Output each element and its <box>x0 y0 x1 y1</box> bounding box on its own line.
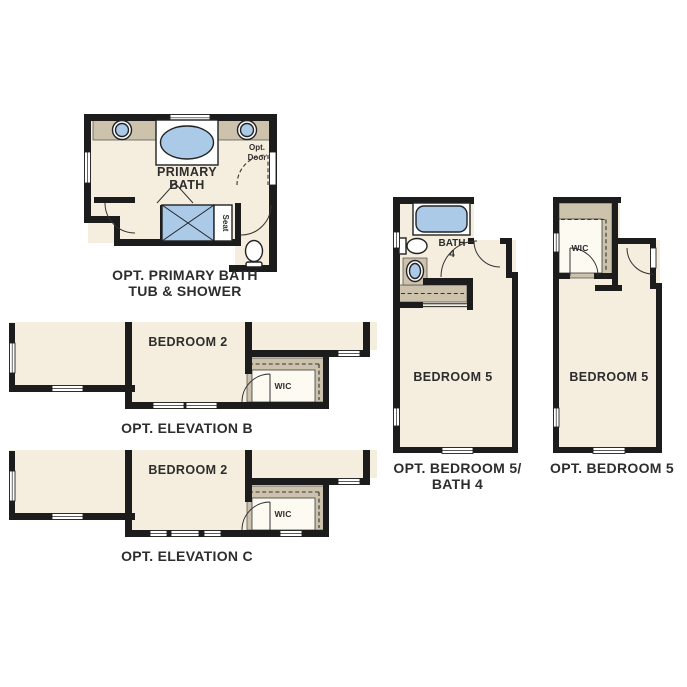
opt-door-label: Door <box>248 153 267 162</box>
wic-label: WIC <box>274 381 291 391</box>
sink-icon <box>113 121 132 140</box>
bath4-label: BATH <box>438 238 465 249</box>
bedroom5-floorplan: WIC BEDROOM 5 <box>551 195 665 457</box>
window <box>85 152 91 183</box>
window <box>394 408 400 426</box>
bedroom5-title: OPT. BEDROOM 5 <box>538 460 686 476</box>
primary-bath-label: PRIMARY <box>157 165 217 179</box>
window <box>171 531 199 537</box>
window <box>52 386 83 392</box>
window <box>593 448 625 454</box>
bedroom5-bath4-title: OPT. BEDROOM 5/ BATH 4 <box>385 460 530 492</box>
closet-shelf <box>398 285 467 302</box>
vanity-sink-icon <box>407 261 424 282</box>
elevation-c-floorplan: BEDROOM 2 WIC <box>8 448 380 542</box>
bath4-label: 4 <box>449 249 455 260</box>
window <box>186 403 217 409</box>
window <box>394 232 400 248</box>
window <box>52 514 83 520</box>
elevation-b-title: OPT. ELEVATION B <box>37 420 337 436</box>
primary-bath-title: OPT. PRIMARY BATH TUB & SHOWER <box>60 267 310 299</box>
window <box>204 531 221 537</box>
wic-shelf <box>559 203 612 278</box>
bedroom2-label: BEDROOM 2 <box>148 463 227 477</box>
window <box>442 448 473 454</box>
bedroom2-label: BEDROOM 2 <box>148 335 227 349</box>
window <box>338 351 360 357</box>
window <box>554 233 560 252</box>
window <box>153 403 184 409</box>
sink-icon <box>238 121 257 140</box>
toilet-icon <box>399 238 427 254</box>
bedroom5-label: BEDROOM 5 <box>569 370 648 384</box>
primary-bath-floorplan: Seat PRIMARY BATH Opt. Door <box>84 112 284 280</box>
toilet-icon <box>246 241 263 268</box>
floorplan-sheet: Seat PRIMARY BATH Opt. Door OPT. PRIMARY… <box>0 0 687 687</box>
opt-door-label: Opt. <box>249 143 265 152</box>
wic-shelf <box>247 486 325 530</box>
wic-label: WIC <box>571 243 588 253</box>
tub-icon <box>156 120 218 165</box>
window <box>554 408 560 427</box>
tub-icon <box>413 203 470 235</box>
elevation-b-floorplan: BEDROOM 2 WIC <box>8 320 380 414</box>
window <box>338 479 360 485</box>
bedroom5-bath4-floorplan: BATH 4 BEDROOM 5 <box>393 195 521 457</box>
window <box>10 343 16 373</box>
seat-label: Seat <box>221 215 230 232</box>
elevation-c-title: OPT. ELEVATION C <box>37 548 337 564</box>
window <box>10 471 16 501</box>
window <box>280 531 302 537</box>
wic-shelf <box>247 358 325 402</box>
window <box>150 531 167 537</box>
wic-label: WIC <box>274 509 291 519</box>
bedroom5-label: BEDROOM 5 <box>413 370 492 384</box>
primary-bath-label: BATH <box>169 178 204 192</box>
